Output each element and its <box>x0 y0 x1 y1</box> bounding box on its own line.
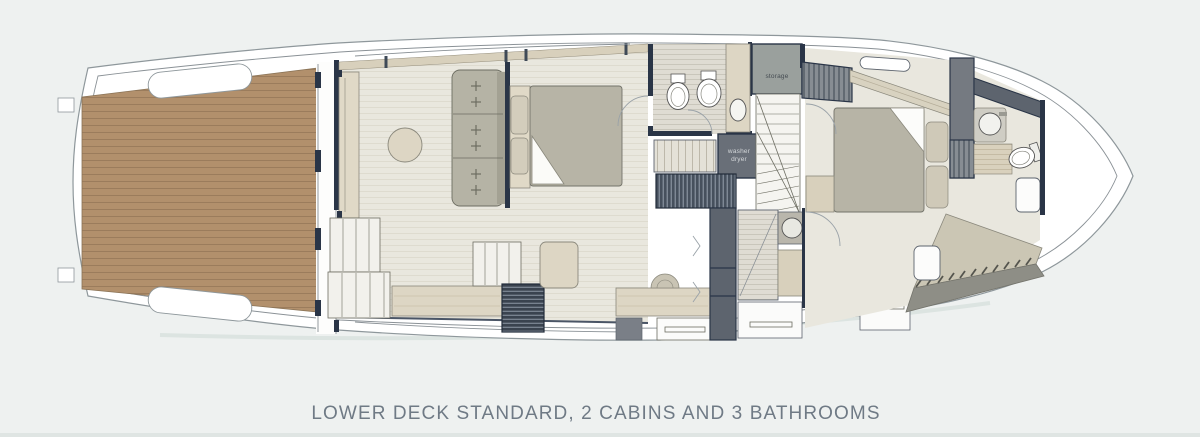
sofa <box>452 70 505 206</box>
hall-bathroom-sink <box>778 212 806 244</box>
wall-tick <box>505 50 508 62</box>
vip-bed <box>834 108 948 212</box>
pillow <box>511 138 528 174</box>
companionway-steps-upper <box>330 218 380 272</box>
hallway-closet-shelves <box>654 140 716 172</box>
caption: LOWER DECK STANDARD, 2 CABINS AND 3 BATH… <box>311 403 880 424</box>
stern-step-top <box>58 98 74 112</box>
pillow <box>511 96 528 134</box>
mast-column <box>950 58 974 178</box>
floor-plan-svg: storage washer dryer <box>0 0 1200 437</box>
nightstand <box>806 176 834 212</box>
counter <box>974 144 1012 174</box>
wall <box>334 60 339 210</box>
aft-deck <box>58 63 318 323</box>
tall-locker <box>1016 178 1040 212</box>
storage-locker: storage <box>752 44 802 94</box>
pillow <box>926 166 948 208</box>
base-unit <box>616 318 642 340</box>
louvered-wardrobe <box>656 174 736 208</box>
midship-landing: storage washer dryer <box>648 44 806 340</box>
wall-tick <box>625 43 628 55</box>
hatched-wardrobe <box>802 62 852 102</box>
wardrobe-column <box>710 208 736 340</box>
aft-sideboard <box>392 286 502 316</box>
master-bed <box>510 86 622 188</box>
bulkhead-post <box>315 150 321 172</box>
bottom-edge-strip <box>0 433 1200 437</box>
wall-tick <box>525 49 528 61</box>
round-table <box>388 128 422 162</box>
bulkhead-post <box>315 72 321 88</box>
wall-tick <box>385 56 388 68</box>
companionway-steps-lower <box>328 272 390 318</box>
yacht-lower-deck-floor-plan: storage washer dryer <box>0 0 1200 437</box>
washer-dryer-unit: washer dryer <box>718 134 760 178</box>
bulkhead-post <box>315 228 321 250</box>
louvered-cabinet <box>502 284 544 332</box>
pillow <box>926 122 948 162</box>
bed-foot-steps <box>473 242 521 286</box>
hall-drawers <box>738 302 802 338</box>
bed-partition-wall <box>505 62 510 208</box>
stern-step-bottom <box>58 268 74 282</box>
hall-cabinet <box>778 250 804 296</box>
shower-stall <box>738 210 778 300</box>
storage-label: storage <box>765 73 788 80</box>
main-staircase <box>756 94 800 214</box>
wall <box>1040 100 1045 215</box>
port-sideboard <box>337 70 359 218</box>
sink-unit <box>974 108 1007 142</box>
seat-locker <box>914 246 940 280</box>
washer-label: washer <box>727 148 751 155</box>
dryer-label: dryer <box>731 156 747 163</box>
teak-deck <box>82 68 318 312</box>
bedside-cabinet <box>540 242 578 288</box>
bulkhead-post <box>315 300 321 316</box>
wall <box>334 320 339 332</box>
